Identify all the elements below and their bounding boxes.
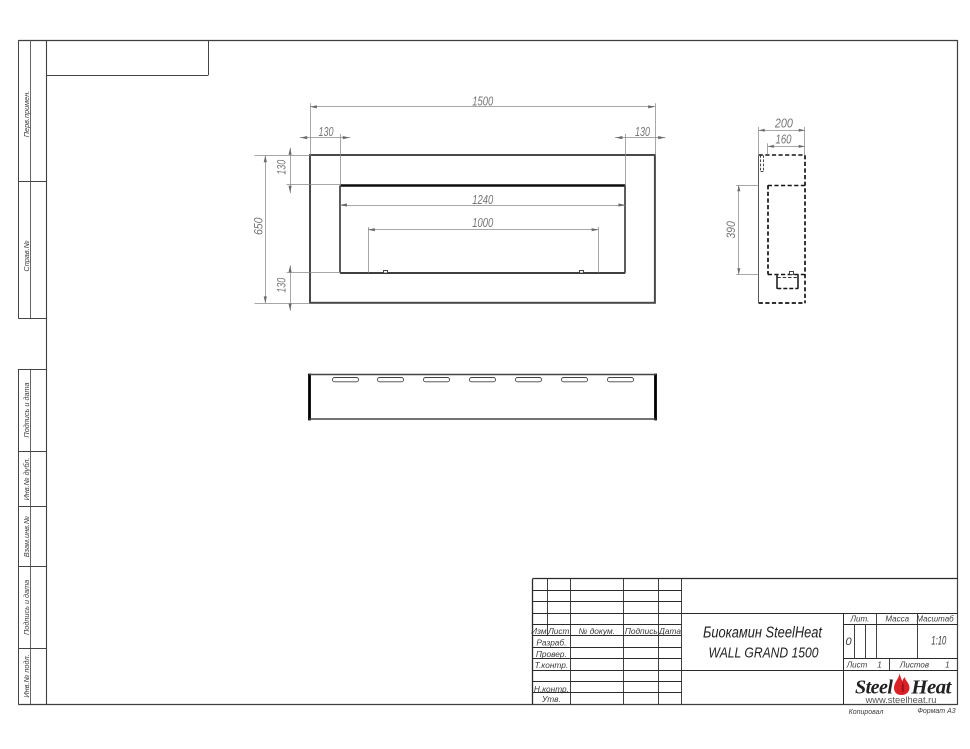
svg-text:Перв.примен.: Перв.примен.	[22, 91, 31, 137]
svg-text:650: 650	[252, 217, 266, 235]
svg-text:Листов: Листов	[899, 661, 929, 670]
svg-text:Провер.: Провер.	[536, 649, 567, 659]
svg-text:Масса: Масса	[885, 614, 909, 623]
svg-text:200: 200	[774, 115, 793, 130]
svg-text:1: 1	[877, 661, 881, 670]
svg-text:Подпись: Подпись	[625, 626, 658, 636]
svg-text:160: 160	[776, 133, 792, 147]
svg-text:1: 1	[945, 661, 949, 670]
svg-text:130: 130	[274, 278, 288, 293]
svg-text:Инв.№ дубл.: Инв.№ дубл.	[22, 458, 31, 501]
svg-text:1000: 1000	[472, 215, 494, 230]
svg-text:Н.контр.: Н.контр.	[534, 684, 569, 694]
svg-text:1500: 1500	[472, 94, 494, 109]
svg-text:Лист: Лист	[846, 661, 868, 670]
svg-text:1:10: 1:10	[931, 636, 946, 648]
svg-text:130: 130	[635, 124, 651, 139]
svg-text:Т.контр.: Т.контр.	[535, 660, 568, 670]
svg-text:0: 0	[846, 636, 853, 648]
svg-text:130: 130	[319, 124, 335, 139]
svg-text:Подпись и дата: Подпись и дата	[22, 382, 31, 437]
svg-text:Масштаб: Масштаб	[916, 614, 954, 623]
svg-text:1240: 1240	[472, 192, 494, 207]
svg-text:www.steelheat.ru: www.steelheat.ru	[865, 695, 937, 705]
svg-text:Копировал: Копировал	[849, 709, 884, 716]
svg-text:Инв.№ подл.: Инв.№ подл.	[22, 654, 31, 697]
svg-text:Дата: Дата	[658, 626, 681, 636]
svg-text:Разраб.: Разраб.	[536, 638, 566, 648]
svg-text:WALL GRAND 1500: WALL GRAND 1500	[709, 644, 820, 661]
svg-text:Формат А3: Формат А3	[917, 708, 955, 715]
svg-text:Лит.: Лит.	[850, 614, 870, 623]
svg-text:Утв.: Утв.	[541, 694, 561, 704]
svg-text:Подпись и дата: Подпись и дата	[22, 580, 31, 635]
svg-text:Изм.: Изм.	[531, 626, 549, 636]
svg-text:130: 130	[274, 160, 288, 175]
svg-text:Справ.№: Справ.№	[22, 240, 31, 271]
svg-text:№ докум.: № докум.	[578, 626, 615, 636]
svg-text:390: 390	[724, 221, 738, 239]
svg-text:Взам.инв.№: Взам.инв.№	[22, 516, 31, 557]
svg-text:Лист: Лист	[547, 626, 569, 636]
svg-text:Биокамин SteelHeat: Биокамин SteelHeat	[703, 624, 823, 641]
